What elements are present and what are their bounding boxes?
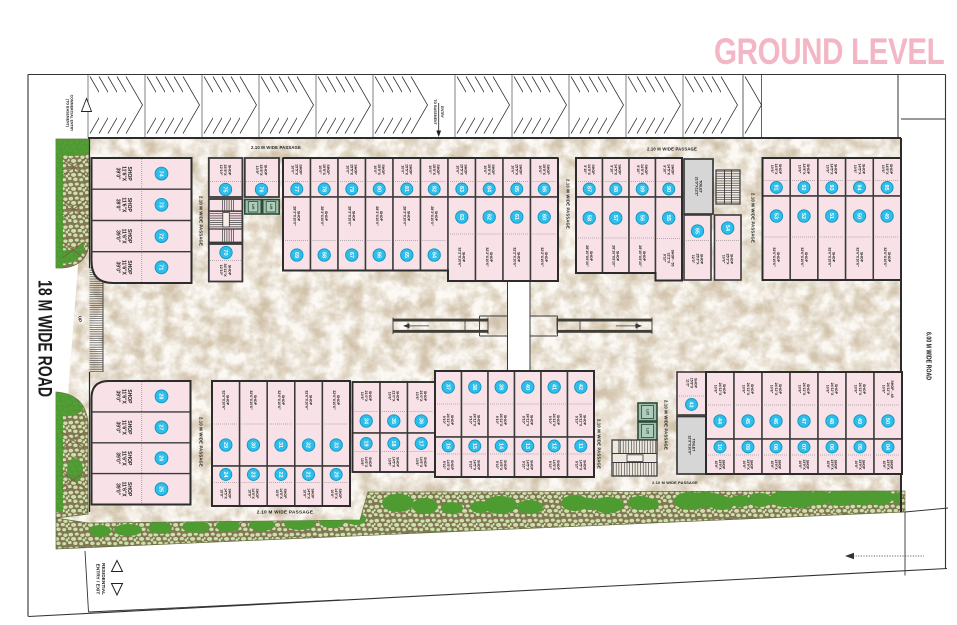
svg-text:86: 86 xyxy=(540,186,546,192)
svg-text:12: 12 xyxy=(550,443,556,449)
svg-text:32: 32 xyxy=(305,442,311,448)
svg-text:08: 08 xyxy=(772,444,778,450)
svg-text:17: 17 xyxy=(417,441,423,447)
svg-text:74: 74 xyxy=(158,171,164,177)
svg-text:06: 06 xyxy=(828,444,834,450)
svg-text:Lift: Lift xyxy=(645,428,649,434)
svg-text:56: 56 xyxy=(638,215,644,221)
svg-text:SHOP11'6"X39'0": SHOP11'6"X39'0" xyxy=(115,482,132,498)
svg-text:53: 53 xyxy=(773,213,779,219)
svg-text:82: 82 xyxy=(430,186,436,192)
svg-text:2.10 M WIDE PASSAGE: 2.10 M WIDE PASSAGE xyxy=(597,419,602,469)
svg-text:78: 78 xyxy=(320,186,326,192)
svg-text:89: 89 xyxy=(638,186,644,192)
svg-text:Lift: Lift xyxy=(269,204,273,210)
svg-text:73: 73 xyxy=(158,202,164,208)
svg-text:11: 11 xyxy=(577,443,583,449)
svg-text:90: 90 xyxy=(665,186,671,192)
svg-text:39: 39 xyxy=(497,384,503,390)
svg-text:93: 93 xyxy=(828,185,834,191)
svg-text:30: 30 xyxy=(250,442,256,448)
svg-text:50: 50 xyxy=(884,418,890,424)
svg-text:2.10 M WIDE PASSAGE: 2.10 M WIDE PASSAGE xyxy=(566,179,571,229)
svg-text:61: 61 xyxy=(513,214,519,220)
svg-text:34: 34 xyxy=(362,418,368,424)
svg-text:62: 62 xyxy=(485,214,491,220)
svg-text:23: 23 xyxy=(250,472,256,478)
svg-text:27: 27 xyxy=(158,424,164,430)
svg-text:29: 29 xyxy=(222,442,228,448)
svg-text:SHOP15'5"X12'10": SHOP15'5"X12'10" xyxy=(219,164,231,176)
svg-text:65: 65 xyxy=(403,252,409,258)
svg-text:6.00 M WIDE ROAD: 6.00 M WIDE ROAD xyxy=(924,332,932,380)
svg-text:SHOP11'6"X39'0": SHOP11'6"X39'0" xyxy=(115,229,132,245)
svg-text:83: 83 xyxy=(458,186,464,192)
svg-text:64: 64 xyxy=(430,252,436,258)
svg-text:SHOP11'6"X39'0": SHOP11'6"X39'0" xyxy=(115,260,132,276)
svg-text:10: 10 xyxy=(716,444,722,450)
svg-text:68: 68 xyxy=(320,252,326,258)
svg-text:69: 69 xyxy=(293,252,299,258)
svg-text:94: 94 xyxy=(856,185,862,191)
svg-text:SHOP15'5"X13'9": SHOP15'5"X13'9" xyxy=(255,164,267,176)
svg-text:57: 57 xyxy=(612,215,618,221)
svg-text:26: 26 xyxy=(158,455,164,461)
svg-text:66: 66 xyxy=(375,252,381,258)
svg-text:20: 20 xyxy=(332,472,338,478)
svg-text:SHOP11'6"X39'0": SHOP11'6"X39'0" xyxy=(115,389,132,405)
svg-text:SHOP11'6"X39'0": SHOP11'6"X39'0" xyxy=(115,451,132,467)
svg-text:41: 41 xyxy=(550,384,556,390)
svg-text:16: 16 xyxy=(444,443,450,449)
svg-text:SHOP11'6"X39'0": SHOP11'6"X39'0" xyxy=(115,197,132,213)
svg-text:72: 72 xyxy=(158,233,164,239)
svg-text:49: 49 xyxy=(883,213,889,219)
svg-text:38: 38 xyxy=(471,384,477,390)
svg-text:76: 76 xyxy=(258,187,264,193)
svg-text:COMMERCIAL ENTRY(TO BASEMENT): COMMERCIAL ENTRY(TO BASEMENT) xyxy=(65,95,73,132)
svg-text:28: 28 xyxy=(158,393,164,399)
svg-text:05: 05 xyxy=(856,444,862,450)
svg-text:67: 67 xyxy=(348,252,354,258)
svg-text:2.10 M WIDE PASSAGE: 2.10 M WIDE PASSAGE xyxy=(199,196,204,246)
svg-text:91: 91 xyxy=(773,185,779,191)
svg-text:15: 15 xyxy=(471,443,477,449)
svg-text:GROUND LEVEL: GROUND LEVEL xyxy=(714,32,944,73)
svg-text:84: 84 xyxy=(485,186,491,192)
svg-text:77: 77 xyxy=(293,186,299,192)
svg-text:43: 43 xyxy=(688,402,694,408)
svg-text:21: 21 xyxy=(305,472,311,478)
svg-text:45: 45 xyxy=(744,418,750,424)
svg-text:31: 31 xyxy=(277,442,283,448)
svg-text:13: 13 xyxy=(524,443,530,449)
svg-text:85: 85 xyxy=(513,186,519,192)
svg-text:18 M WIDE ROAD: 18 M WIDE ROAD xyxy=(34,280,56,397)
svg-text:SHOP11'6"X39'0": SHOP11'6"X39'0" xyxy=(115,420,132,436)
svg-text:50: 50 xyxy=(856,213,862,219)
svg-text:04: 04 xyxy=(884,444,890,450)
svg-text:95: 95 xyxy=(883,185,889,191)
svg-text:22: 22 xyxy=(277,472,283,478)
svg-text:79: 79 xyxy=(348,186,354,192)
svg-text:07: 07 xyxy=(800,444,806,450)
svg-text:55: 55 xyxy=(665,215,671,221)
svg-text:52: 52 xyxy=(800,213,806,219)
svg-text:2.10 M WIDE PASSAGE: 2.10 M WIDE PASSAGE xyxy=(652,481,698,485)
svg-text:60: 60 xyxy=(540,214,546,220)
svg-text:87: 87 xyxy=(585,186,591,192)
svg-text:33: 33 xyxy=(332,442,338,448)
svg-text:SHOP34'11"X12'10": SHOP34'11"X12'10" xyxy=(219,263,231,277)
svg-text:14: 14 xyxy=(497,443,503,449)
svg-text:2.10 M WIDE PASSAGE: 2.10 M WIDE PASSAGE xyxy=(199,417,204,467)
svg-text:75: 75 xyxy=(222,187,228,193)
svg-text:09: 09 xyxy=(744,444,750,450)
svg-text:2.10 M WIDE PASSAGE: 2.10 M WIDE PASSAGE xyxy=(251,145,301,150)
svg-text:2.10 M WIDE PASSAGE: 2.10 M WIDE PASSAGE xyxy=(751,193,756,243)
svg-text:51: 51 xyxy=(828,213,834,219)
svg-text:RESIDENTIALENTRY / EXIT: RESIDENTIALENTRY / EXIT xyxy=(95,563,106,595)
svg-text:44: 44 xyxy=(716,418,722,424)
svg-text:UP: UP xyxy=(78,316,83,322)
svg-text:19: 19 xyxy=(362,441,368,447)
svg-text:42: 42 xyxy=(577,384,583,390)
svg-text:2.10 M WIDE PASSAGE: 2.10 M WIDE PASSAGE xyxy=(664,400,669,450)
svg-text:24: 24 xyxy=(222,472,228,478)
svg-text:80: 80 xyxy=(375,186,381,192)
svg-text:35: 35 xyxy=(390,418,396,424)
svg-text:81: 81 xyxy=(403,186,409,192)
svg-text:71: 71 xyxy=(158,264,164,270)
svg-text:40: 40 xyxy=(524,384,530,390)
svg-text:Lift: Lift xyxy=(645,409,649,415)
svg-text:92: 92 xyxy=(800,185,806,191)
svg-text:58: 58 xyxy=(585,215,591,221)
svg-text:25: 25 xyxy=(158,486,164,492)
svg-text:88: 88 xyxy=(612,186,618,192)
svg-text:Lift: Lift xyxy=(251,204,255,210)
svg-text:SHOP11'6"X39'0": SHOP11'6"X39'0" xyxy=(115,166,132,182)
svg-text:37: 37 xyxy=(444,384,450,390)
svg-text:36: 36 xyxy=(417,418,423,424)
svg-text:54: 54 xyxy=(724,225,730,231)
svg-text:46: 46 xyxy=(772,418,778,424)
svg-text:65: 65 xyxy=(694,228,700,234)
svg-text:2.10 M WIDE PASSAGE: 2.10 M WIDE PASSAGE xyxy=(257,510,313,515)
svg-text:49: 49 xyxy=(856,418,862,424)
svg-text:18: 18 xyxy=(390,441,396,447)
svg-text:63: 63 xyxy=(458,214,464,220)
svg-text:2.10 M WIDE PASSAGE: 2.10 M WIDE PASSAGE xyxy=(647,147,697,152)
svg-text:48: 48 xyxy=(828,418,834,424)
svg-text:70: 70 xyxy=(222,250,228,256)
svg-text:47: 47 xyxy=(800,418,806,424)
